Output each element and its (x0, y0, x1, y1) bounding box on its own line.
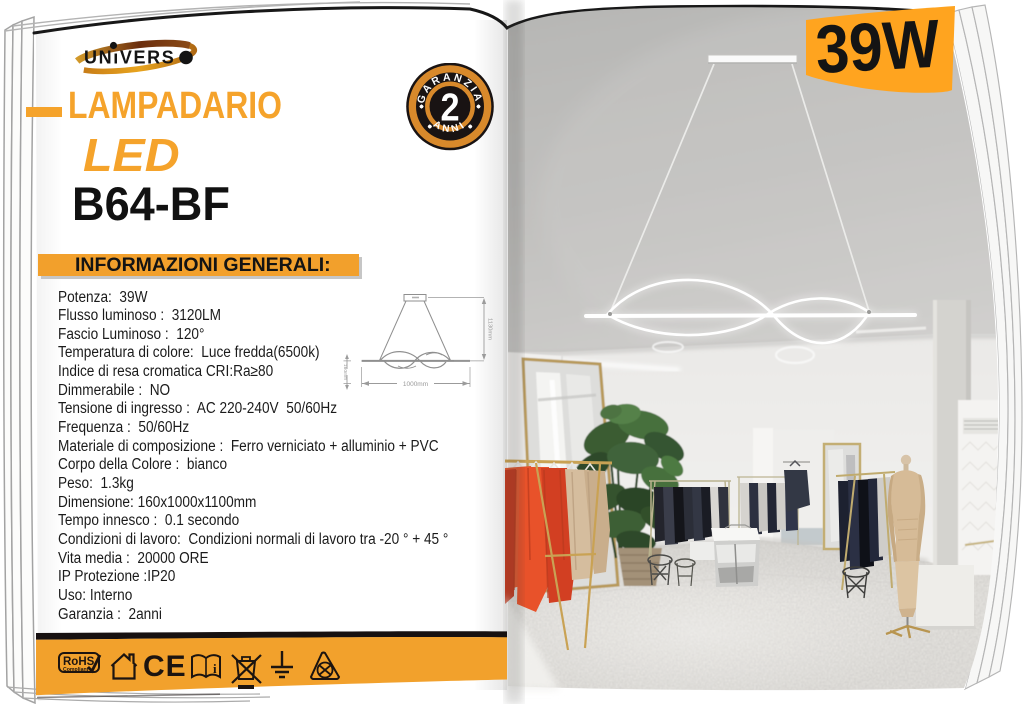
svg-text:39W: 39W (814, 5, 942, 88)
svg-text:Compliant: Compliant (63, 667, 89, 673)
svg-text:160mm: 160mm (342, 364, 348, 380)
svg-text:1000mm: 1000mm (403, 381, 428, 388)
svg-text:1130mm: 1130mm (487, 318, 493, 340)
svg-text:CE: CE (143, 650, 187, 683)
svg-text:UNıVERS: UNıVERS (84, 48, 176, 68)
svg-text:i: i (213, 661, 217, 676)
svg-text:2: 2 (440, 85, 459, 129)
